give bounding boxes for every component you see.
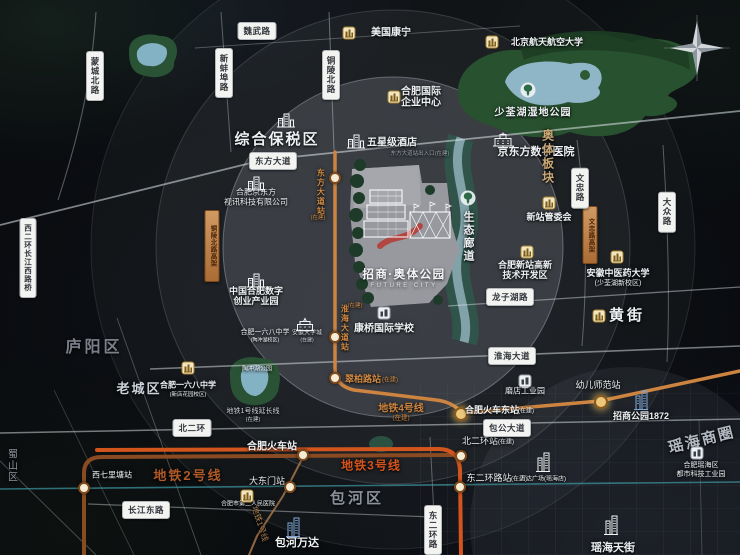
road-label-dazhong: 大众路: [658, 192, 676, 233]
station-label-beierhuan: 北二环站: [462, 437, 498, 447]
poi-label-wanda-yaohai: 万达广场(瑶海店): [520, 477, 566, 484]
station-label-huaihaidadao-sub: (在建): [348, 303, 363, 309]
district-label-baohe: 包河区: [330, 491, 384, 508]
station-label-dongfangdadao-sub: (在建): [311, 215, 326, 221]
school-168-gold-icon: [182, 362, 195, 375]
road-label-tonglingbei: 铜陵北路: [322, 50, 340, 100]
station-label-beierhuan-sub: (在建): [498, 440, 514, 447]
zhaoshang1872-tower-icon: [633, 390, 649, 410]
station-dot-cuibailu: [329, 372, 341, 384]
poi-label-corning: 美国康宁: [371, 28, 411, 39]
station-dot-youershifan: [594, 395, 608, 409]
poi-label-univ-2: (在建): [300, 338, 313, 344]
univ-school-icon: [295, 317, 315, 332]
station-label-huaihaidadao: 淮海大道站: [340, 304, 349, 352]
digital-park-building-icon: [247, 273, 265, 288]
shaoquanhu-tree-icon: [520, 82, 536, 98]
area-label-bonded-zone: 综合保税区: [234, 132, 319, 149]
poi-label-intl-center-1: 合肥国际: [401, 87, 441, 98]
metro-label-line4-sub: (在建): [392, 414, 409, 421]
station-label-cuibailu: 翠柏路站: [345, 375, 381, 385]
hotel-building-icon: [347, 134, 365, 149]
kangqiao-chip-icon: [378, 307, 391, 320]
school-label-168-xinzhan-2: (新店花园校区): [170, 392, 207, 398]
school-label-168-xinzhan-1: 合肥一六八中学: [160, 382, 216, 391]
station-dot-dongfangdadao: [329, 172, 341, 184]
station-label-dadongmen: 大东门站: [249, 477, 285, 487]
bonded-zone-building-icon: [277, 113, 295, 128]
station-label-xiqilitang: 西七里塘站: [92, 472, 132, 481]
road-label-wenzhong: 文忠路: [571, 168, 589, 209]
poi-label-intl-center-2: 企业中心: [401, 98, 441, 109]
metro-label-line1-ext-2: (在建): [246, 417, 261, 423]
school-label-kangqiao: 康桥国际学校: [354, 324, 414, 335]
station-label-youershifan: 幼儿师范站: [575, 381, 620, 391]
poi-label-zhaoshang1872: 招商公园1872: [613, 412, 669, 422]
viaduct-ribbon-wenzhong: 文忠路高架: [583, 206, 598, 264]
metro-label-line1-ext-1: 地铁1号线延长线: [227, 408, 280, 416]
location-map: 招商·奥体公园 FUTURE CITY 美国康宁北京航天航空大学少荃湖湿地公园综…: [0, 0, 740, 555]
poi-label-baohe-wanda: 包河万达: [275, 537, 319, 549]
area-label-huangjie: 黄街: [609, 308, 645, 325]
poi-label-boe-tech-2: 视讯科技有限公司: [224, 199, 288, 208]
poi-label-hotel: 五星级酒店: [367, 138, 417, 149]
station-label-dongerhuanlu: 东二环路站: [466, 474, 511, 484]
station-label-cuibailu-sub: (在建): [382, 378, 398, 385]
poi-label-boe-hospital: 京东方数字医院: [498, 146, 575, 158]
station-dot-hefei-railway: [297, 449, 309, 461]
project-name-english: FUTURE CITY: [370, 283, 437, 289]
road-label-baogong-avenue: 包公大道: [483, 419, 531, 437]
note-station-exit: 东方大道站出入口(在建): [391, 151, 450, 157]
station-label-east-railway-sub: (在建): [518, 409, 534, 416]
district-label-shushan: 蜀山区: [6, 449, 17, 484]
corridor-label-eco: 生态廊道: [462, 211, 474, 263]
station-label-east-railway: 合肥火车东站: [465, 406, 519, 416]
project-name: 招商·奥体公园: [362, 266, 445, 282]
road-label-huaihai-avenue: 淮海大道: [488, 347, 536, 365]
no2-hospital-gold-icon: [241, 490, 254, 503]
school-label-168-taochong-2: (陶冲湖校区): [251, 338, 279, 344]
poi-label-yaohai-indpark-2: 都市科技工业园: [677, 471, 726, 479]
road-label-changjiangdong: 长江东路: [122, 501, 170, 519]
area-label-aoti-block: 奥体板块: [540, 129, 553, 185]
boe-tech-building-icon: [247, 176, 265, 191]
road-label-beierhuan: 北二环: [172, 419, 211, 437]
poi-label-xinzhan-admin: 新站管委会: [526, 213, 571, 223]
metro-label-line4: 地铁4号线: [378, 404, 424, 415]
modian-chip-icon: [519, 375, 532, 388]
road-label-mengchengbei: 蒙城北路: [86, 51, 104, 101]
road-mengchengbei: [58, 12, 96, 200]
poi-label-hitech-zone-2: 技术开发区: [502, 271, 547, 281]
poi-label-beihang-univ: 北京航天航空大学: [511, 38, 583, 48]
area-label-old-town: 老城区: [116, 382, 161, 396]
wanda-plaza-tower-icon: [535, 452, 551, 472]
metro-label-line2: 地铁2号线: [153, 469, 222, 483]
park-label-taochonghu: 陶冲湖公园: [242, 367, 272, 374]
corridor-tree-icon: [460, 190, 476, 206]
poi-label-tcm-univ-1: 安徽中医药大学: [586, 269, 649, 279]
xinzhan-admin-gold-icon: [543, 197, 556, 210]
poi-label-yaohai-indpark-1: 合肥瑶海区: [684, 462, 719, 470]
yaohai-indpark-chip-icon: [691, 447, 704, 460]
beihang-gold-icon: [486, 36, 499, 49]
station-dot-dadongmen: [284, 481, 296, 493]
corning-gold-icon: [343, 27, 356, 40]
road-label-xinbengbu: 新蚌埠路: [215, 48, 233, 98]
boe-hospital-icon: [493, 132, 513, 147]
poi-label-yaohai-tianjie: 瑶海天街: [591, 542, 635, 554]
intl-center-gold-icon: [388, 91, 401, 104]
poi-label-digital-park-2: 创业产业园: [233, 297, 278, 307]
district-label-luyang: 庐阳区: [65, 339, 122, 357]
station-label-dongfangdadao: 东方大道站: [316, 168, 325, 216]
road-label-dongerhuan: 东二环路: [424, 505, 442, 555]
yaohai-tianjie-tower-icon: [603, 515, 619, 535]
park-label-shaoquanhu: 少荃湖湿地公园: [495, 108, 572, 119]
road-label-dongfang-avenue: 东方大道: [249, 152, 297, 170]
poi-label-tcm-univ-2: (少荃湖新校区): [595, 280, 642, 288]
hitech-zone-gold-icon: [521, 246, 534, 259]
road-label-longzihu: 龙子湖路: [486, 288, 534, 306]
baohe-wanda-tower-icon: [285, 517, 301, 537]
road-label-weiwu: 魏武路: [237, 22, 276, 40]
station-label-hefei-railway: 合肥火车站: [247, 442, 297, 453]
huangjie-gold-icon: [593, 310, 606, 323]
station-dot-beierhuan: [455, 450, 467, 462]
viaduct-ribbon-tongling: 铜陵北路高架: [205, 210, 220, 282]
poi-label-modian: 磨店工业园: [505, 388, 545, 397]
tcm-univ-gold-icon: [611, 251, 624, 264]
station-dot-dongerhuanlu: [454, 481, 466, 493]
school-label-168-taochong-1: 合肥一六八中学: [241, 329, 290, 337]
station-dot-xiqilitang: [78, 482, 90, 494]
road-label-xierhuan-bridge: 西二环长江西路桥: [20, 218, 37, 298]
metro-label-line3: 地铁3号线: [341, 459, 401, 472]
